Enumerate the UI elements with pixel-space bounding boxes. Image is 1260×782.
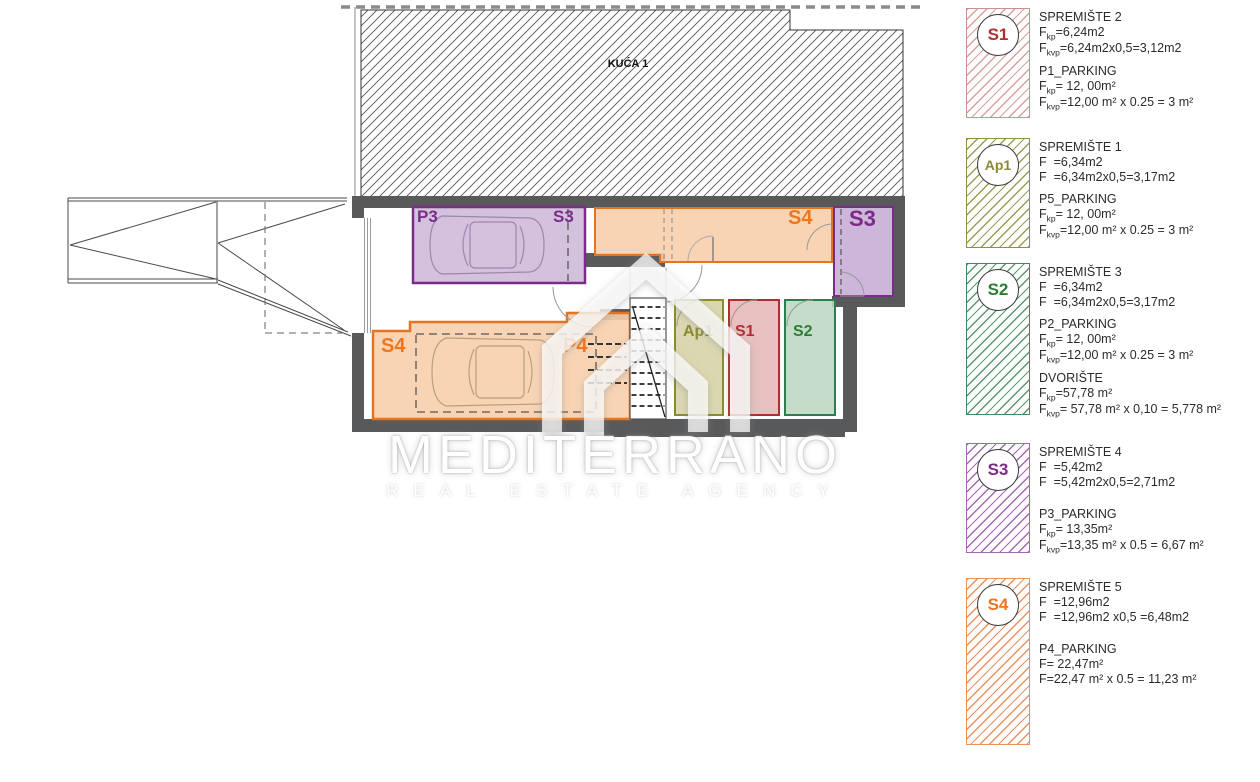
legend-entry-ap1: Ap1 SPREMIŠTE 1 F =6,34m2 F =6,34m2x0,5=… xyxy=(966,138,1193,248)
legend-line: F= 22,47m² xyxy=(1039,657,1196,672)
badge-label: Ap1 xyxy=(985,157,1011,173)
legend-section-title: P1_PARKING xyxy=(1039,64,1193,79)
legend-section-title: SPREMIŠTE 4 xyxy=(1039,445,1204,460)
badge-label: S4 xyxy=(988,595,1009,615)
legend-line: Fkp=57,78 m² xyxy=(1039,386,1221,402)
legend-line: Fkp=6,24m2 xyxy=(1039,25,1193,41)
legend-entry-s3: S3 SPREMIŠTE 4 F =5,42m2 F =5,42m2x0,5=2… xyxy=(966,443,1204,554)
legend-swatch-hatch: Ap1 xyxy=(966,138,1030,248)
floor-plan-svg: KUĆA 1 xyxy=(0,0,960,777)
legend-line: Fkvp=6,24m2x0,5=3,12m2 xyxy=(1039,41,1193,57)
legend-entry-s1: S1 SPREMIŠTE 2 Fkp=6,24m2 Fkvp=6,24m2x0,… xyxy=(966,8,1193,118)
legend-line: Fkvp=12,00 m² x 0.25 = 3 m² xyxy=(1039,223,1193,239)
kuca1-label: KUĆA 1 xyxy=(608,57,649,70)
legend-section-title: SPREMIŠTE 3 xyxy=(1039,265,1221,280)
legend-badge: S4 xyxy=(977,584,1019,626)
badge-label: S1 xyxy=(988,25,1009,45)
legend-line: F =5,42m2 xyxy=(1039,460,1204,475)
legend-section-title: DVORIŠTE xyxy=(1039,371,1221,386)
label-s3-inline: S3 xyxy=(553,207,574,226)
legend-line: F =6,34m2 xyxy=(1039,155,1193,170)
legend-line: Fkp= 13,35m² xyxy=(1039,522,1204,538)
legend-text: SPREMIŠTE 1 F =6,34m2 F =6,34m2x0,5=3,17… xyxy=(1039,140,1193,239)
legend-section-title: P3_PARKING xyxy=(1039,507,1204,522)
legend-section-title: P5_PARKING xyxy=(1039,192,1193,207)
legend-badge: S2 xyxy=(977,269,1019,311)
legend-line: Fkp= 12, 00m² xyxy=(1039,332,1221,348)
legend-badge: S3 xyxy=(977,449,1019,491)
legend-section-title: P2_PARKING xyxy=(1039,317,1221,332)
legend-line: F =5,42m2x0,5=2,71m2 xyxy=(1039,475,1204,490)
legend-section-title: SPREMIŠTE 1 xyxy=(1039,140,1193,155)
legend-line: Fkp= 12, 00m² xyxy=(1039,207,1193,223)
legend-line: F =12,96m2 x0,5 =6,48m2 xyxy=(1039,610,1196,625)
legend-line: F =6,34m2x0,5=3,17m2 xyxy=(1039,295,1221,310)
label-p3: P3 xyxy=(417,207,438,226)
legend-text: SPREMIŠTE 5 F =12,96m2 F =12,96m2 x0,5 =… xyxy=(1039,580,1196,687)
legend-line: Fkvp=12,00 m² x 0.25 = 3 m² xyxy=(1039,95,1193,111)
legend-line: Fkvp=13,35 m² x 0.5 = 6,67 m² xyxy=(1039,538,1204,554)
legend-swatch-hatch: S3 xyxy=(966,443,1030,553)
room-s2 xyxy=(785,300,835,415)
legend-section-title: SPREMIŠTE 2 xyxy=(1039,10,1193,25)
floor-plan-page: KUĆA 1 xyxy=(0,0,1260,777)
legend-text: SPREMIŠTE 3 F =6,34m2 F =6,34m2x0,5=3,17… xyxy=(1039,265,1221,418)
legend-line: F=22,47 m² x 0.5 = 11,23 m² xyxy=(1039,672,1196,687)
legend-line: F =6,34m2x0,5=3,17m2 xyxy=(1039,170,1193,185)
label-s4-garage: S4 xyxy=(381,335,406,357)
legend-line: Fkvp=12,00 m² x 0.25 = 3 m² xyxy=(1039,348,1221,364)
legend-text: SPREMIŠTE 2 Fkp=6,24m2 Fkvp=6,24m2x0,5=3… xyxy=(1039,10,1193,111)
driveway-ramp xyxy=(68,198,351,336)
legend-line: F =6,34m2 xyxy=(1039,280,1221,295)
legend-line: F =12,96m2 xyxy=(1039,595,1196,610)
legend-entry-s2: S2 SPREMIŠTE 3 F =6,34m2 F =6,34m2x0,5=3… xyxy=(966,263,1221,418)
label-s3-room: S3 xyxy=(849,206,876,231)
legend-line: Fkp= 12, 00m² xyxy=(1039,79,1193,95)
badge-label: S2 xyxy=(988,280,1009,300)
legend-swatch-hatch: S1 xyxy=(966,8,1030,118)
legend-badge: S1 xyxy=(977,14,1019,56)
legend-line: Fkvp= 57,78 m² x 0,10 = 5,778 m² xyxy=(1039,402,1221,418)
label-s4-top: S4 xyxy=(788,207,813,229)
legend-entry-s4: S4 SPREMIŠTE 5 F =12,96m2 F =12,96m2 x0,… xyxy=(966,578,1196,745)
garage-door-lines xyxy=(365,218,371,333)
legend-section-title: SPREMIŠTE 5 xyxy=(1039,580,1196,595)
label-s2: S2 xyxy=(793,323,813,340)
legend-text: SPREMIŠTE 4 F =5,42m2 F =5,42m2x0,5=2,71… xyxy=(1039,445,1204,554)
legend-badge: Ap1 xyxy=(977,144,1019,186)
badge-label: S3 xyxy=(988,460,1009,480)
kuca1-building-hatch xyxy=(361,10,903,197)
legend-swatch-hatch: S2 xyxy=(966,263,1030,415)
legend-swatch-hatch: S4 xyxy=(966,578,1030,745)
legend-section-title: P4_PARKING xyxy=(1039,642,1196,657)
